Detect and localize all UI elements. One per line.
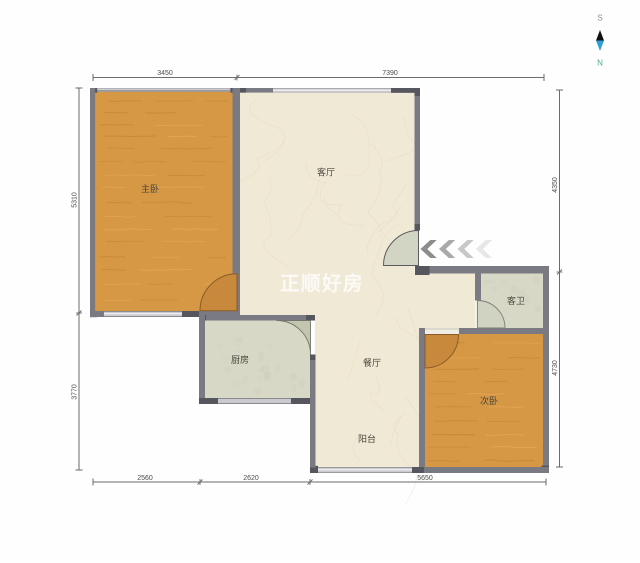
- svg-text:5650: 5650: [417, 475, 433, 482]
- svg-text:N: N: [597, 59, 603, 68]
- svg-text:S: S: [597, 14, 602, 23]
- svg-text:4350: 4350: [552, 177, 559, 193]
- svg-text:餐厅: 餐厅: [363, 357, 381, 368]
- svg-text:7390: 7390: [382, 70, 398, 77]
- svg-text:次卧: 次卧: [480, 395, 498, 406]
- svg-text:厨房: 厨房: [231, 354, 249, 365]
- svg-text:客卫: 客卫: [507, 295, 525, 306]
- svg-text:4730: 4730: [552, 360, 559, 376]
- svg-text:3770: 3770: [72, 384, 79, 400]
- svg-text:3450: 3450: [157, 70, 173, 77]
- svg-text:阳台: 阳台: [358, 433, 376, 444]
- svg-text:主卧: 主卧: [141, 183, 159, 194]
- svg-text:2620: 2620: [243, 475, 259, 482]
- svg-text:5310: 5310: [72, 192, 79, 208]
- svg-text:客厅: 客厅: [317, 167, 335, 178]
- svg-text:2560: 2560: [137, 475, 153, 482]
- svg-text:正顺好房: 正顺好房: [280, 272, 364, 295]
